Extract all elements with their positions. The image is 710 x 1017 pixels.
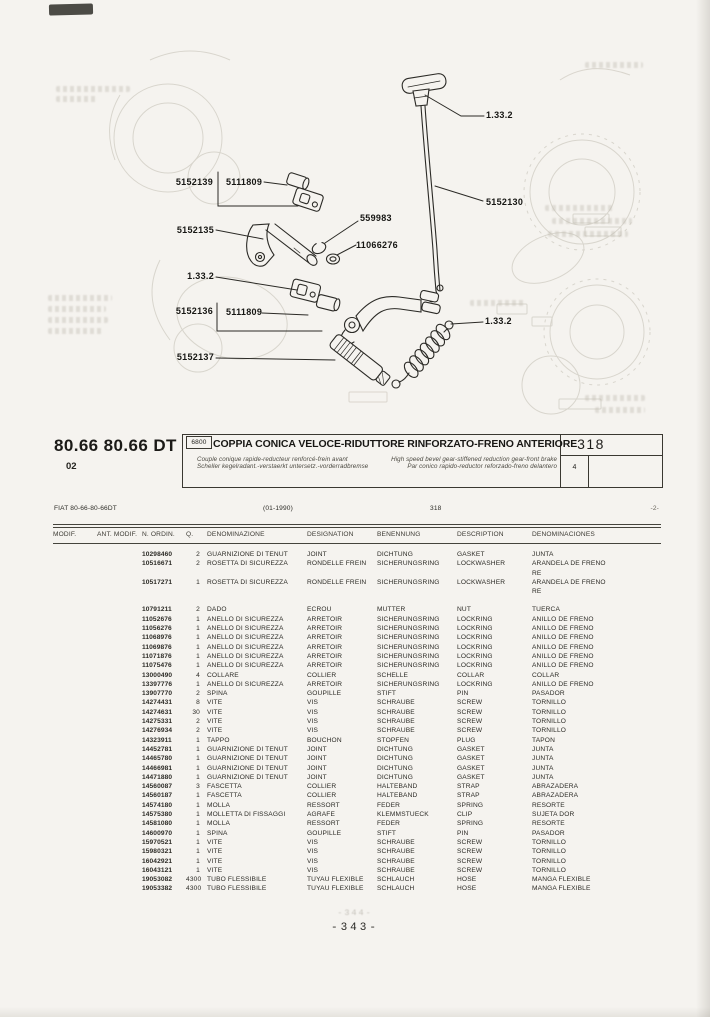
c-nordin: 10516671 [142, 559, 186, 578]
c-description: GASKET [457, 745, 532, 754]
c-q: 1 [186, 857, 200, 866]
table-row: 105172711ROSETTA DI SICUREZZARONDELLE FR… [53, 578, 661, 597]
c-benennung: DICHTUNG [377, 764, 457, 773]
c-description: SCREW [457, 838, 532, 847]
c-modif [53, 866, 97, 875]
c-designation: BOUCHON [307, 736, 377, 745]
c-modif [53, 838, 97, 847]
c-modif [53, 884, 97, 893]
splined-shaft-part [328, 333, 391, 387]
c-nordin: 14276934 [142, 726, 186, 735]
c-description: LOCKWASHER [457, 559, 532, 578]
c-q: 1 [186, 745, 200, 754]
c-nordin: 14600970 [142, 829, 186, 838]
c-q: 1 [186, 810, 200, 819]
c-nordin: 14574180 [142, 801, 186, 810]
c-modif [53, 689, 97, 698]
header-box-border [588, 455, 589, 488]
c-q: 30 [186, 708, 200, 717]
c-denominaciones: ANILLO DE FRENO [532, 652, 661, 661]
c-description: LOCKRING [457, 615, 532, 624]
c-benennung: SCHRAUBE [377, 866, 457, 875]
table-row: 102984602GUARNIZIONE DI TENUTJOINTDICHTU… [53, 550, 661, 559]
c-denominaciones: TORNILLO [532, 717, 661, 726]
c-denominazione: SPINA [200, 689, 307, 698]
c-designation: VIS [307, 726, 377, 735]
c-benennung: SCHLAUCH [377, 875, 457, 884]
c-denominaciones: JUNTA [532, 773, 661, 782]
c-modif [53, 578, 97, 597]
c-nordin: 16043121 [142, 866, 186, 875]
c-denominaciones: COLLAR [532, 671, 661, 680]
c-nordin: 14560187 [142, 791, 186, 800]
callout-label: 5152139 [163, 177, 213, 187]
c-denominaciones: PASADOR [532, 829, 661, 838]
c-description: HOSE [457, 884, 532, 893]
c-q: 3 [186, 782, 200, 791]
c-modif [53, 559, 97, 578]
c-antmodif [97, 745, 142, 754]
c-nordin: 15980321 [142, 847, 186, 856]
c-antmodif [97, 680, 142, 689]
c-benennung: SICHERUNGSRING [377, 615, 457, 624]
c-denominazione: FASCETTA [200, 791, 307, 800]
c-modif [53, 550, 97, 559]
c-benennung: FEDER [377, 801, 457, 810]
c-antmodif [97, 884, 142, 893]
c-description: LOCKRING [457, 680, 532, 689]
table-row: 110698761ANELLO DI SICUREZZAARRETOIRSICH… [53, 643, 661, 652]
c-benennung: SCHLAUCH [377, 884, 457, 893]
c-q: 1 [186, 736, 200, 745]
c-benennung: STIFT [377, 689, 457, 698]
c-benennung: SCHELLE [377, 671, 457, 680]
c-benennung: SCHRAUBE [377, 857, 457, 866]
c-nordin: 15970521 [142, 838, 186, 847]
c-nordin: 14274631 [142, 708, 186, 717]
c-benennung: STIFT [377, 829, 457, 838]
table-row: 145600873FASCETTACOLLIERHALTEBANDSTRAPAB… [53, 782, 661, 791]
c-denominazione: VITE [200, 717, 307, 726]
c-denominaciones: ANILLO DE FRENO [532, 615, 661, 624]
c-nordin: 11052676 [142, 615, 186, 624]
c-modif [53, 633, 97, 642]
c-denominaciones: TORNILLO [532, 726, 661, 735]
c-denominazione: ANELLO DI SICUREZZA [200, 633, 307, 642]
c-designation: TUYAU FLEXIBLE [307, 884, 377, 893]
c-denominaciones: ARANDELA DE FRENO RE [532, 559, 661, 578]
c-designation: VIS [307, 857, 377, 866]
table-row: 110754761ANELLO DI SICUREZZAARRETOIRSICH… [53, 661, 661, 670]
c-benennung: SICHERUNGSRING [377, 652, 457, 661]
c-denominaciones: TORNILLO [532, 857, 661, 866]
c-description: LOCKRING [457, 652, 532, 661]
table-row: 110562761ANELLO DI SICUREZZAARRETOIRSICH… [53, 624, 661, 633]
footer-page-number: -343- [0, 922, 710, 934]
callout-label: 5152136 [163, 306, 213, 316]
c-denominazione: GUARNIZIONE DI TENUT [200, 745, 307, 754]
c-denominaciones: MANGA FLEXIBLE [532, 884, 661, 893]
c-modif [53, 652, 97, 661]
c-antmodif [97, 698, 142, 707]
c-designation: RONDELLE FREIN [307, 578, 377, 597]
c-denominaciones: RESORTE [532, 819, 661, 828]
callout-label: 5152135 [164, 225, 214, 235]
c-modif [53, 605, 97, 614]
c-antmodif [97, 559, 142, 578]
subtitle-fr: Couple conique rapide-reducteur renforcé… [197, 456, 348, 463]
c-description: SCREW [457, 866, 532, 875]
c-description: SCREW [457, 708, 532, 717]
c-nordin: 19053382 [142, 884, 186, 893]
c-q: 1 [186, 847, 200, 856]
c-antmodif [97, 671, 142, 680]
c-denominaciones: SUJETA DOR [532, 810, 661, 819]
c-denominazione: ANELLO DI SICUREZZA [200, 615, 307, 624]
table-row: 110526761ANELLO DI SICUREZZAARRETOIRSICH… [53, 615, 661, 624]
c-designation: VIS [307, 866, 377, 875]
c-antmodif [97, 857, 142, 866]
col-header-designation: DESIGNATION [307, 531, 377, 538]
callout-label: 11066276 [356, 240, 398, 250]
table-header-row: MODIF. ANT. MODIF. N. ORDIN. Q. DENOMINA… [53, 531, 661, 538]
c-designation: JOINT [307, 773, 377, 782]
c-nordin: 14471880 [142, 773, 186, 782]
c-description: SPRING [457, 819, 532, 828]
c-designation: GOUPILLE [307, 829, 377, 838]
c-designation: TUYAU FLEXIBLE [307, 875, 377, 884]
table-row: 145741801MOLLARESSORTFEDERSPRINGRESORTE [53, 801, 661, 810]
c-q: 1 [186, 652, 200, 661]
col-header-denominazione: DENOMINAZIONE [200, 531, 307, 538]
c-modif [53, 671, 97, 680]
table-row: 146009701SPINAGOUPILLESTIFTPINPASADOR [53, 829, 661, 838]
c-denominaciones: JUNTA [532, 550, 661, 559]
c-antmodif [97, 661, 142, 670]
c-denominaciones: MANGA FLEXIBLE [532, 875, 661, 884]
header-box-border [560, 455, 663, 456]
c-denominaciones: PASADOR [532, 689, 661, 698]
c-designation: AGRAFE [307, 810, 377, 819]
c-q: 1 [186, 754, 200, 763]
table-row: 130004904COLLARECOLLIERSCHELLECOLLARCOLL… [53, 671, 661, 680]
c-designation: VIS [307, 847, 377, 856]
c-designation: JOINT [307, 745, 377, 754]
c-designation: COLLIER [307, 671, 377, 680]
c-benennung: SICHERUNGSRING [377, 578, 457, 597]
table-body: 102984602GUARNIZIONE DI TENUTJOINTDICHTU… [53, 550, 661, 894]
table-row: 145601871FASCETTACOLLIERHALTEBANDSTRAPAB… [53, 791, 661, 800]
c-modif [53, 829, 97, 838]
c-denominaciones: JUNTA [532, 764, 661, 773]
c-description: LOCKRING [457, 661, 532, 670]
c-antmodif [97, 819, 142, 828]
c-modif [53, 680, 97, 689]
table-row: 110689761ANELLO DI SICUREZZAARRETOIRSICH… [53, 633, 661, 642]
c-denominazione: VITE [200, 708, 307, 717]
table-row: 144669811GUARNIZIONE DI TENUTJOINTDICHTU… [53, 764, 661, 773]
table-row: 1427463130VITEVISSCHRAUBESCREWTORNILLO [53, 708, 661, 717]
c-antmodif [97, 708, 142, 717]
table-row: 190530824300TUBO FLESSIBILETUYAU FLEXIBL… [53, 875, 661, 884]
c-antmodif [97, 578, 142, 597]
c-antmodif [97, 605, 142, 614]
c-modif [53, 708, 97, 717]
c-description: PIN [457, 829, 532, 838]
c-description: STRAP [457, 791, 532, 800]
table-row: 144718801GUARNIZIONE DI TENUTJOINTDICHTU… [53, 773, 661, 782]
date-range: (01-1990) [263, 505, 293, 512]
c-denominazione: DADO [200, 605, 307, 614]
c-benennung: SCHRAUBE [377, 698, 457, 707]
table-row: 160429211VITEVISSCHRAUBESCREWTORNILLO [53, 857, 661, 866]
header-box-border [662, 434, 663, 488]
c-designation: ECROU [307, 605, 377, 614]
callout-label: 1.33.2 [485, 316, 512, 326]
c-modif [53, 615, 97, 624]
c-denominaciones: ANILLO DE FRENO [532, 643, 661, 652]
c-denominaciones: TUERCA [532, 605, 661, 614]
c-denominazione: ANELLO DI SICUREZZA [200, 624, 307, 633]
col-header-denominaciones: DENOMINACIONES [532, 531, 661, 538]
c-modif [53, 801, 97, 810]
c-antmodif [97, 773, 142, 782]
table-row: 105166712ROSETTA DI SICUREZZARONDELLE FR… [53, 559, 661, 578]
c-modif [53, 698, 97, 707]
c-nordin: 11056276 [142, 624, 186, 633]
table-row: 145810801MOLLARESSORTFEDERSPRINGRESORTE [53, 819, 661, 828]
lower-clamp-part [289, 279, 343, 313]
c-antmodif [97, 736, 142, 745]
c-nordin: 14274431 [142, 698, 186, 707]
c-description: SPRING [457, 801, 532, 810]
col-header-ant-modif: ANT. MODIF. [97, 531, 142, 538]
group-code-badge: 6800 [186, 436, 212, 449]
c-description: GASKET [457, 754, 532, 763]
c-nordin: 10517271 [142, 578, 186, 597]
c-antmodif [97, 652, 142, 661]
meta-sheet: -2- [650, 505, 659, 512]
c-q: 1 [186, 829, 200, 838]
table-row: 144527811GUARNIZIONE DI TENUTJOINTDICHTU… [53, 745, 661, 754]
c-antmodif [97, 689, 142, 698]
c-q: 1 [186, 643, 200, 652]
c-denominazione: ANELLO DI SICUREZZA [200, 643, 307, 652]
c-q: 4300 [186, 875, 200, 884]
c-benennung: SICHERUNGSRING [377, 661, 457, 670]
c-antmodif [97, 875, 142, 884]
table-row: 133977761ANELLO DI SICUREZZAARRETOIRSICH… [53, 680, 661, 689]
c-modif [53, 745, 97, 754]
c-benennung: DICHTUNG [377, 754, 457, 763]
c-denominazione: GUARNIZIONE DI TENUT [200, 550, 307, 559]
c-description: CLIP [457, 810, 532, 819]
c-designation: COLLIER [307, 782, 377, 791]
c-q: 1 [186, 680, 200, 689]
c-modif [53, 782, 97, 791]
c-description: PIN [457, 689, 532, 698]
c-benennung: MUTTER [377, 605, 457, 614]
table-row: 159803211VITEVISSCHRAUBESCREWTORNILLO [53, 847, 661, 856]
exploded-parts-diagram [0, 0, 710, 435]
section-code: 80.66 80.66 DT [54, 436, 177, 456]
c-antmodif [97, 838, 142, 847]
c-designation: JOINT [307, 550, 377, 559]
c-benennung: SICHERUNGSRING [377, 680, 457, 689]
c-q: 2 [186, 605, 200, 614]
table-rule [53, 527, 661, 528]
c-modif [53, 773, 97, 782]
c-nordin: 14560087 [142, 782, 186, 791]
c-nordin: 14575380 [142, 810, 186, 819]
table-row: 160431211VITEVISSCHRAUBESCREWTORNILLO [53, 866, 661, 875]
c-antmodif [97, 810, 142, 819]
c-benennung: SICHERUNGSRING [377, 559, 457, 578]
c-antmodif [97, 643, 142, 652]
table-meta-line: FIAT 80-66-80-66DT (01-1990) 318 -2- [53, 505, 661, 515]
c-q: 2 [186, 550, 200, 559]
c-denominaciones: TORNILLO [532, 847, 661, 856]
subtitle-en: High speed bevel gear-stiffened reductio… [338, 456, 557, 463]
c-modif [53, 624, 97, 633]
c-denominaciones: ANILLO DE FRENO [532, 661, 661, 670]
table-row: 110718761ANELLO DI SICUREZZAARRETOIRSICH… [53, 652, 661, 661]
c-denominazione: VITE [200, 866, 307, 875]
c-modif [53, 847, 97, 856]
c-benennung: DICHTUNG [377, 773, 457, 782]
c-designation: RESSORT [307, 801, 377, 810]
table-row: 139077702SPINAGOUPILLESTIFTPINPASADOR [53, 689, 661, 698]
c-benennung: SCHRAUBE [377, 726, 457, 735]
c-antmodif [97, 717, 142, 726]
table-row: 143239111TAPPOBOUCHONSTOPFENPLUGTAPON [53, 736, 661, 745]
c-description: LOCKWASHER [457, 578, 532, 597]
c-benennung: SCHRAUBE [377, 708, 457, 717]
c-description: PLUG [457, 736, 532, 745]
c-nordin: 19053082 [142, 875, 186, 884]
c-description: GASKET [457, 764, 532, 773]
c-q: 1 [186, 633, 200, 642]
page-number: 318 [560, 436, 622, 452]
parts-table: FIAT 80-66-80-66DT (01-1990) 318 -2- MOD… [53, 505, 661, 515]
return-spring-part [392, 321, 453, 388]
c-denominaciones: ARANDELA DE FRENO RE [532, 578, 661, 597]
table-row: 145753801MOLLETTA DI FISSAGGIAGRAFEKLEMM… [53, 810, 661, 819]
c-modif [53, 726, 97, 735]
c-denominaciones: JUNTA [532, 754, 661, 763]
c-antmodif [97, 633, 142, 642]
c-nordin: 14275331 [142, 717, 186, 726]
table-row: 107912112DADOECROUMUTTERNUTTUERCA [53, 605, 661, 614]
c-description: STRAP [457, 782, 532, 791]
c-nordin: 14466981 [142, 764, 186, 773]
c-description: SCREW [457, 717, 532, 726]
c-benennung: SICHERUNGSRING [377, 633, 457, 642]
table-row: 142744318VITEVISSCHRAUBESCREWTORNILLO [53, 698, 661, 707]
c-denominazione: ANELLO DI SICUREZZA [200, 661, 307, 670]
c-denominaciones: JUNTA [532, 745, 661, 754]
ghost-prev-page-number: -344- [0, 908, 710, 918]
header-box-border [182, 487, 663, 488]
c-denominazione: TUBO FLESSIBILE [200, 884, 307, 893]
c-benennung: FEDER [377, 819, 457, 828]
c-designation: ARRETOIR [307, 643, 377, 652]
c-description: SCREW [457, 726, 532, 735]
c-denominaciones: ABRAZADERA [532, 791, 661, 800]
c-denominazione: VITE [200, 726, 307, 735]
c-benennung: SICHERUNGSRING [377, 643, 457, 652]
c-description: HOSE [457, 875, 532, 884]
c-nordin: 11075476 [142, 661, 186, 670]
c-q: 1 [186, 624, 200, 633]
callout-label: 559983 [360, 213, 392, 223]
c-modif [53, 810, 97, 819]
c-nordin: 11071876 [142, 652, 186, 661]
col-header-q: Q. [186, 531, 200, 538]
c-antmodif [97, 801, 142, 810]
c-designation: ARRETOIR [307, 615, 377, 624]
c-description: NUT [457, 605, 532, 614]
c-antmodif [97, 782, 142, 791]
c-nordin: 13000490 [142, 671, 186, 680]
c-denominaciones: RESORTE [532, 801, 661, 810]
c-modif [53, 717, 97, 726]
c-denominazione: MOLLA [200, 819, 307, 828]
c-designation: JOINT [307, 764, 377, 773]
c-q: 1 [186, 801, 200, 810]
meta-page: 318 [430, 505, 441, 512]
c-designation: ARRETOIR [307, 633, 377, 642]
col-header-benennung: BENENNUNG [377, 531, 457, 538]
c-nordin: 11069876 [142, 643, 186, 652]
c-denominaciones: ANILLO DE FRENO [532, 680, 661, 689]
table-row: 190533824300TUBO FLESSIBILETUYAU FLEXIBL… [53, 884, 661, 893]
table-rule [53, 543, 661, 544]
catalog-page: 5152139 5111809 1.33.2 5152130 559983 11… [0, 0, 710, 1017]
table-row: 159705211VITEVISSCHRAUBESCREWTORNILLO [53, 838, 661, 847]
c-q: 1 [186, 615, 200, 624]
c-benennung: HALTEBAND [377, 782, 457, 791]
c-q: 2 [186, 726, 200, 735]
c-denominazione: GUARNIZIONE DI TENUT [200, 773, 307, 782]
c-modif [53, 857, 97, 866]
c-modif [53, 643, 97, 652]
c-q: 4300 [186, 884, 200, 893]
callout-label: 1.33.2 [168, 271, 214, 281]
c-denominazione: TUBO FLESSIBILE [200, 875, 307, 884]
c-nordin: 14323911 [142, 736, 186, 745]
c-denominaciones: TORNILLO [532, 708, 661, 717]
c-q: 2 [186, 559, 200, 578]
c-designation: VIS [307, 708, 377, 717]
c-nordin: 11068976 [142, 633, 186, 642]
col-header-description: DESCRIPTION [457, 531, 532, 538]
table-row: 142753312VITEVISSCHRAUBESCREWTORNILLO [53, 717, 661, 726]
c-modif [53, 875, 97, 884]
c-q: 1 [186, 773, 200, 782]
c-q: 1 [186, 866, 200, 875]
c-benennung: KLEMMSTUECK [377, 810, 457, 819]
c-description: COLLAR [457, 671, 532, 680]
washer-part [327, 254, 340, 264]
c-designation: GOUPILLE [307, 689, 377, 698]
c-description: LOCKRING [457, 643, 532, 652]
section-subcode: 02 [66, 461, 77, 472]
table-rule [53, 524, 661, 525]
c-denominaciones: ANILLO DE FRENO [532, 633, 661, 642]
c-benennung: HALTEBAND [377, 791, 457, 800]
c-description: GASKET [457, 550, 532, 559]
